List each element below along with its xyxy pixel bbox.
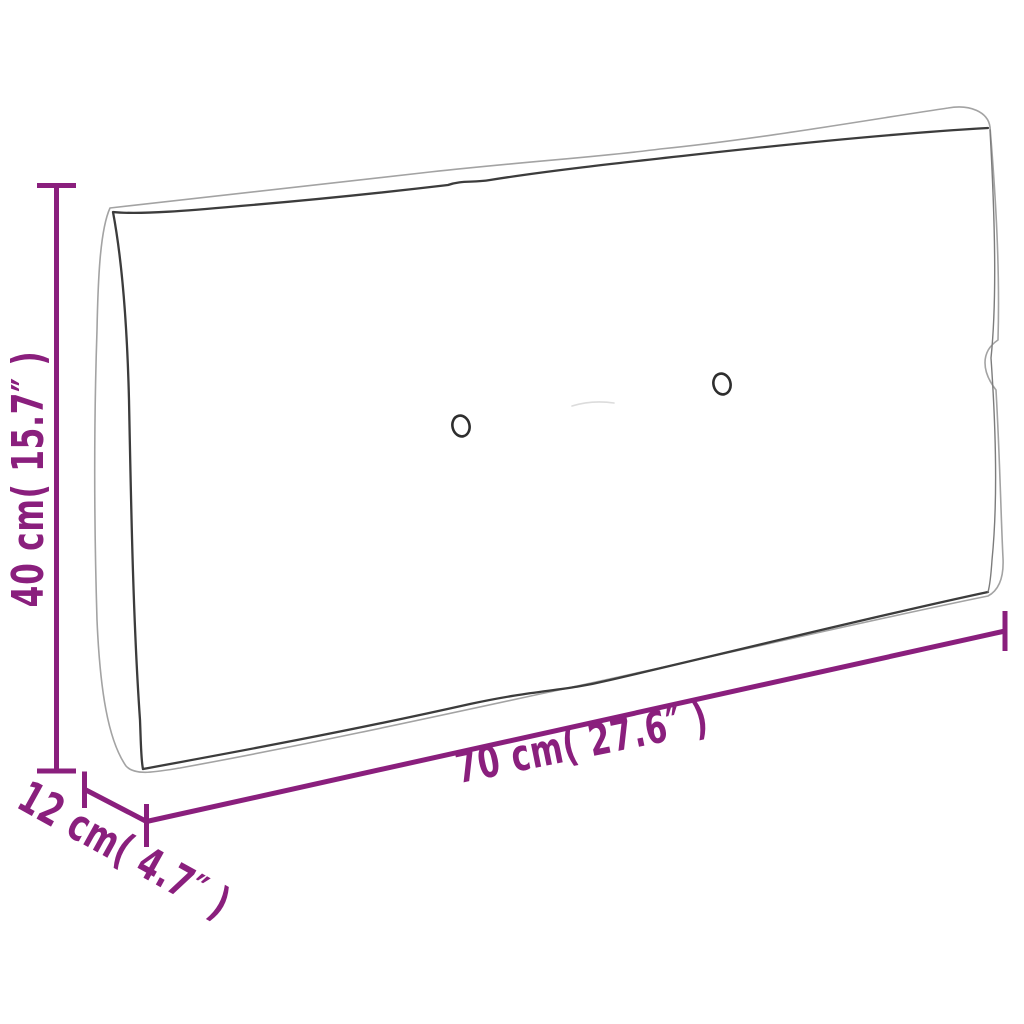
product-dimension-diagram: 40 cm( 15.7″ ) 70 cm( 27.6″ ) 12 cm( 4.7… bbox=[0, 0, 1024, 1024]
cushion-illustration bbox=[95, 107, 1003, 772]
height-dimension-label: 40 cm( 15.7″ ) bbox=[7, 351, 51, 608]
